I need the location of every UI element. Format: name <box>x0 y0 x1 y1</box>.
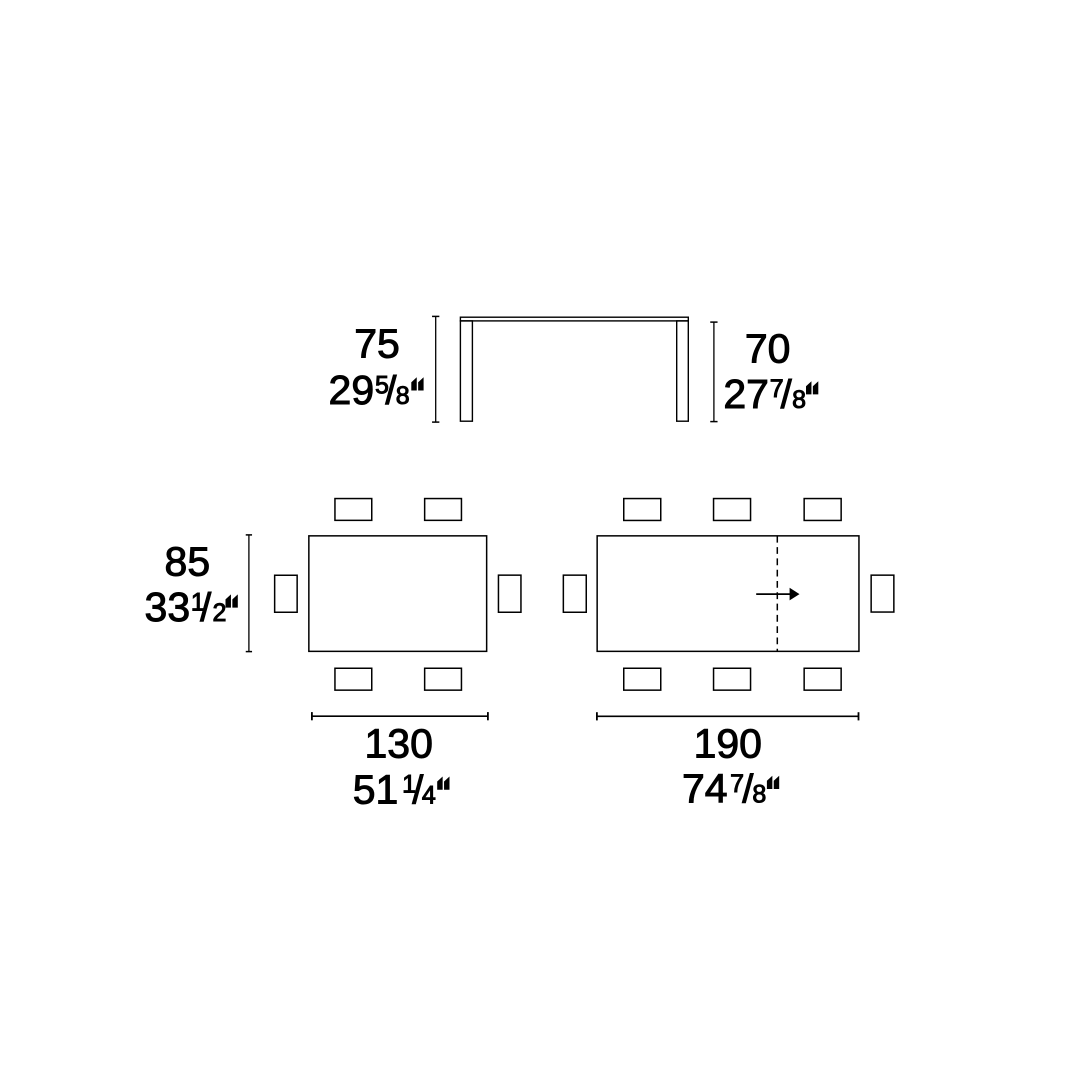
svg-text:130: 130 <box>364 721 432 767</box>
svg-text:33: 33 <box>145 584 191 630</box>
svg-text:70: 70 <box>745 326 791 372</box>
svg-text:74: 74 <box>682 766 728 812</box>
svg-text:/: / <box>200 586 212 630</box>
svg-text:190: 190 <box>694 721 762 767</box>
svg-text:51: 51 <box>353 766 399 812</box>
svg-text:85: 85 <box>165 539 211 585</box>
svg-text:2: 2 <box>213 599 227 627</box>
svg-text:75: 75 <box>354 321 400 367</box>
svg-text:8: 8 <box>792 386 806 414</box>
svg-text:27: 27 <box>723 371 769 417</box>
svg-text:29: 29 <box>329 367 375 413</box>
svg-text:/: / <box>781 373 793 417</box>
svg-text:4: 4 <box>422 781 436 809</box>
svg-text:8: 8 <box>752 781 766 809</box>
svg-text:8: 8 <box>396 382 410 410</box>
